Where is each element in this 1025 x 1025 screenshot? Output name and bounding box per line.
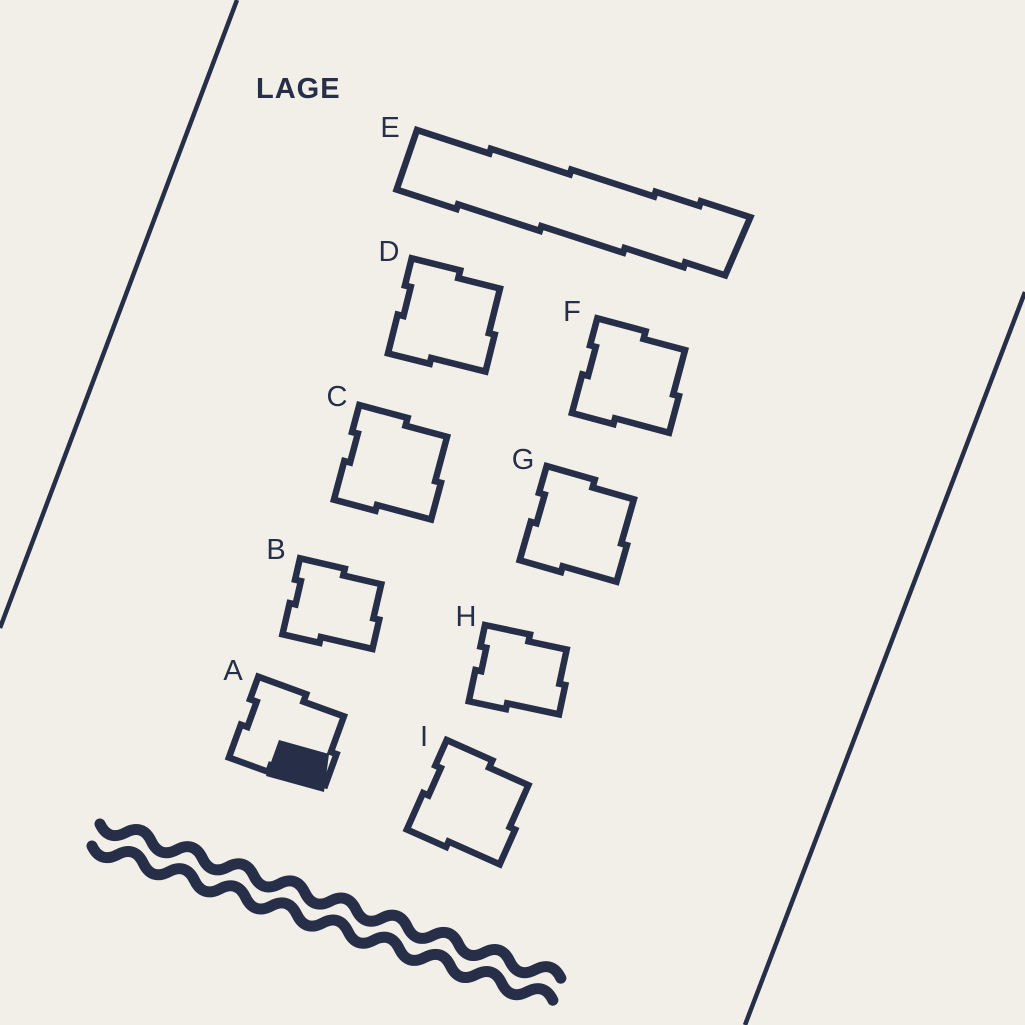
building-label-b: B [266, 534, 285, 566]
building-outline-h[interactable] [469, 625, 574, 720]
building-outline-i[interactable] [407, 740, 537, 870]
selected-unit-marker[interactable] [266, 740, 329, 792]
building-outline-f[interactable] [572, 318, 693, 438]
building-outline-c[interactable] [334, 405, 455, 525]
building-label-i: I [420, 721, 428, 753]
building-label-g: G [512, 444, 535, 476]
site-plan-svg: EDFCGBHAI [0, 0, 1025, 1025]
building-label-c: C [327, 381, 348, 413]
site-boundary-line-right [745, 292, 1025, 1025]
building-outline-g[interactable] [520, 466, 642, 587]
building-label-e: E [380, 112, 399, 144]
site-plan: EDFCGBHAI LAGE [0, 0, 1025, 1025]
page-title: LAGE [256, 75, 341, 104]
site-boundary-line-left [0, 0, 237, 628]
building-label-a: A [223, 655, 243, 687]
water-waves [90, 817, 563, 1006]
building-outline-d[interactable] [388, 258, 508, 377]
building-label-d: D [379, 236, 400, 268]
building-label-h: H [456, 601, 477, 633]
water-wave-2 [90, 839, 555, 1006]
water-wave-1 [98, 817, 563, 984]
building-label-f: F [563, 296, 581, 328]
building-outline-b[interactable] [282, 558, 388, 654]
